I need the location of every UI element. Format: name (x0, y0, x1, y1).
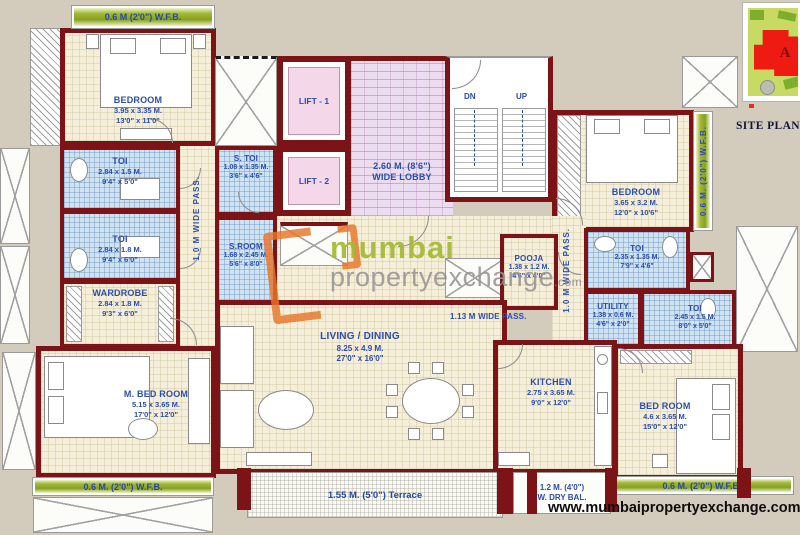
furniture-sofa (220, 390, 254, 448)
lift-car: LIFT - 2 (288, 157, 340, 205)
furniture-chair (408, 428, 420, 440)
furniture-chair (462, 406, 474, 418)
furniture-nightstand (86, 34, 99, 49)
furniture-chair (408, 362, 420, 374)
furniture-pillow (712, 414, 730, 440)
flower-bed-band-right: 0.6 M. (2'0") W.F.B. (694, 112, 712, 230)
duct-panel (215, 56, 277, 146)
fixture-wc (662, 236, 678, 258)
furniture-chair (432, 428, 444, 440)
fixture-stove (597, 392, 608, 414)
fixture-basin (120, 178, 160, 200)
flower-bed-band-top: 0.6 M (2'0") W.F.B. (72, 6, 214, 28)
band-label: 0.6 M. (2'0") W.F.B. (663, 481, 742, 491)
furniture-sofa (220, 326, 254, 384)
wall-pier (527, 470, 537, 514)
band-label: 0.6 M. (2'0") W.F.B. (699, 126, 708, 216)
furniture-cabinet (246, 452, 312, 466)
furniture-nightstand (652, 454, 668, 468)
wardrobe-shelf (66, 286, 82, 342)
lift-1: LIFT - 1 (277, 56, 351, 146)
stairs-up-label: UP (516, 92, 527, 101)
furniture-pillow (110, 38, 136, 54)
furniture-pillow (48, 396, 64, 424)
terrace: 1.55 M. (5'0") Terrace (247, 472, 503, 518)
furniture-chair (386, 384, 398, 396)
window-panel (2, 352, 36, 470)
watermark-brand2: propertyexchange.com (330, 263, 582, 293)
furniture-dining-table (402, 378, 460, 424)
room-label: S. TOI 1.08 x 1.35 M. 3'6" x 4'6" (219, 154, 273, 182)
website-url: www.mumbaipropertyexchange.com (548, 500, 800, 516)
stairs-down-label: DN (464, 92, 476, 101)
watermark-brand: mumbai (330, 232, 582, 263)
map-green-patch (783, 76, 798, 90)
lift-2: LIFT - 2 (277, 146, 351, 216)
band-label: 0.6 M. (2'0") W.F.B. (84, 482, 163, 492)
map-green-patch (750, 10, 764, 20)
room-label: UTILITY 1.38 x 0.6 M. 4'6" x 2'0" (588, 302, 638, 330)
lobby-label: 2.60 M. (8'6") WIDE LOBBY (351, 161, 453, 184)
furniture-stool (128, 418, 158, 440)
room-label: KITCHEN 2.75 x 3.65 M. 9'0" x 12'0" (498, 377, 604, 407)
flower-bed-band-bottom-right: 0.6 M. (2'0") W.F.B. (611, 477, 793, 494)
terrace-label: 1.55 M. (5'0") Terrace (328, 490, 422, 501)
fixture-wc (70, 158, 88, 182)
watermark-suffix: .com (554, 275, 582, 289)
fixture-sink (597, 354, 608, 365)
furniture-nightstand (193, 34, 206, 49)
building-a-marker: A (754, 30, 798, 76)
furniture-pillow (594, 119, 620, 134)
stair-flight (454, 108, 498, 192)
closet-top-left (30, 28, 64, 146)
site-plan-label: SITE PLAN (736, 120, 800, 132)
furniture-chair (462, 384, 474, 396)
flower-bed-hatch (33, 497, 213, 533)
room-label: TOI 2.45 x 1.5 M. 8'0" x 5'0" (658, 304, 732, 332)
lift-car: LIFT - 1 (288, 67, 340, 135)
furniture-pillow (48, 362, 64, 390)
site-plan-thumbnail: A (742, 2, 800, 102)
furniture-rug (258, 390, 314, 430)
passage-label: 1.0 M WIDE PASS. (192, 176, 201, 261)
fixture-basin (594, 236, 616, 252)
brand-bracket-icon (263, 227, 322, 324)
fixture-basin (120, 236, 160, 258)
duct-panel-small (690, 252, 714, 282)
fixture-wc (70, 248, 88, 272)
wall-pier (737, 468, 751, 498)
furniture-pillow (712, 384, 730, 410)
window-panel (736, 226, 798, 352)
furniture-chair (432, 362, 444, 374)
furniture-cabinet (498, 452, 530, 466)
furniture-pillow (160, 38, 186, 54)
map-red-dot (749, 104, 754, 108)
room-label: LIVING / DINING 8.25 x 4.9 M. 27'0" x 16… (270, 331, 450, 364)
window-panel (0, 148, 30, 244)
furniture-chair (386, 406, 398, 418)
watermark-logo-icon (268, 230, 328, 320)
floor-plan-canvas: 0.6 M (2'0") W.F.B. BEDROOM 3.95 x 3.35 … (0, 0, 800, 535)
furniture-tv-unit (188, 358, 210, 444)
wall-pier (237, 468, 251, 510)
wall-pier (497, 468, 513, 514)
watermark-text: mumbai propertyexchange.com (330, 232, 582, 293)
window-panel (682, 56, 738, 108)
window-panel (0, 246, 30, 344)
room-label: BEDROOM 3.65 x 3.2 M. 12'0" x 10'6" (583, 187, 689, 217)
stair-arrow (522, 110, 523, 166)
map-roundabout (760, 80, 775, 95)
site-plan-map: A (748, 8, 798, 96)
furniture-pillow (644, 119, 670, 134)
fixture-wc (700, 298, 716, 320)
lobby: 2.60 M. (8'6") WIDE LOBBY (351, 56, 453, 216)
flower-bed-band-bottom-left: 0.6 M. (2'0") W.F.B. (33, 478, 213, 495)
dry-balcony-size: 1.2 M. (4'0") (540, 483, 584, 493)
map-green-patch (777, 10, 796, 22)
stair-flight (502, 108, 546, 192)
room-toilet-right-2: TOI 2.45 x 1.5 M. 8'0" x 5'0" (640, 290, 736, 350)
stair-arrow (474, 110, 475, 166)
band-label: 0.6 M (2'0") W.F.B. (105, 12, 181, 22)
